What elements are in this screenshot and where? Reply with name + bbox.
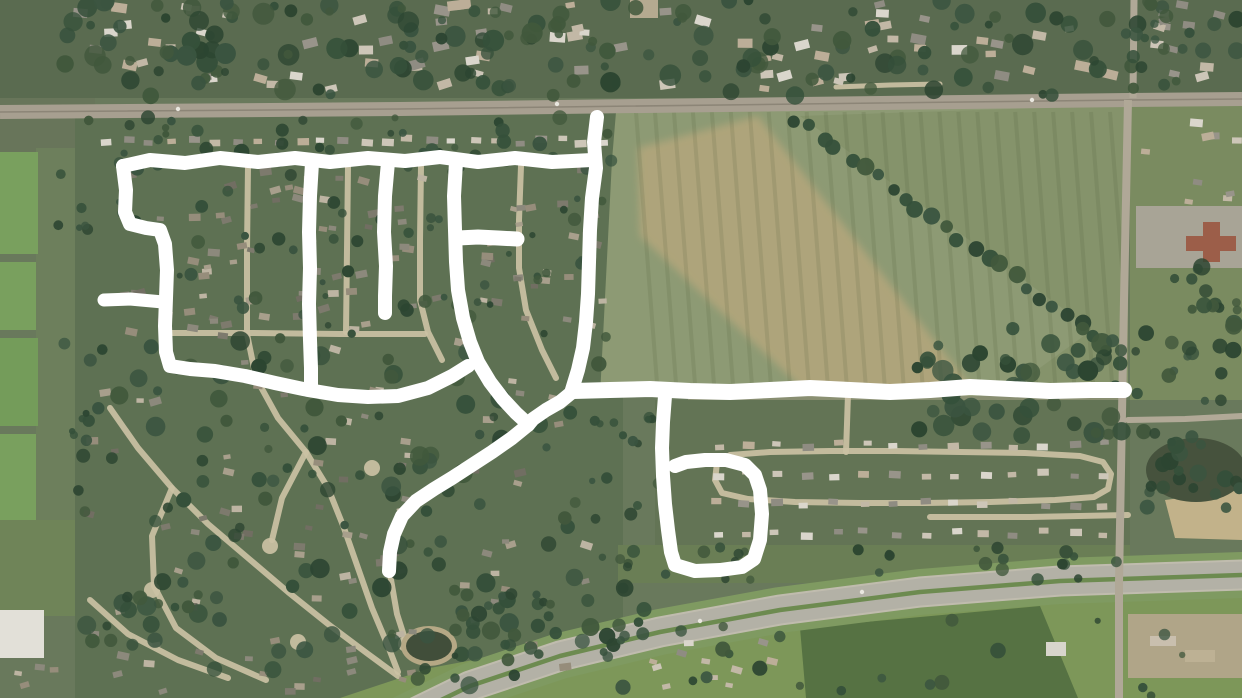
house <box>834 529 843 535</box>
house <box>144 140 153 146</box>
tree <box>125 120 135 130</box>
tree <box>182 600 195 613</box>
tree <box>177 46 197 66</box>
house <box>976 37 988 45</box>
tree <box>1232 298 1241 307</box>
tree <box>432 557 446 571</box>
tree <box>1089 56 1099 66</box>
tree <box>197 475 210 488</box>
tree <box>222 186 233 197</box>
tree <box>289 245 298 254</box>
tree <box>623 562 632 571</box>
hedgerow-tree <box>949 233 963 247</box>
tree <box>252 3 274 25</box>
tree <box>989 11 1001 23</box>
tree <box>481 47 494 60</box>
tree <box>677 13 687 23</box>
tree <box>627 545 640 558</box>
tree <box>933 341 943 351</box>
tree <box>215 43 236 64</box>
tree <box>1128 83 1139 94</box>
tree <box>633 501 642 510</box>
tree <box>70 431 78 439</box>
tree <box>1190 465 1207 482</box>
house <box>230 259 238 264</box>
house <box>981 472 992 479</box>
tree <box>544 611 554 621</box>
house <box>339 477 348 483</box>
tree <box>1132 388 1143 399</box>
tree <box>177 577 188 588</box>
tree <box>456 395 475 414</box>
tree <box>546 600 555 609</box>
house <box>481 252 493 260</box>
tree <box>759 13 770 24</box>
tree <box>500 640 510 650</box>
tree <box>154 66 164 76</box>
tree <box>509 670 520 681</box>
house <box>799 503 808 509</box>
tree <box>177 273 183 279</box>
tree <box>325 322 332 329</box>
house <box>713 473 724 480</box>
tree <box>601 62 609 70</box>
tree <box>160 45 174 59</box>
house <box>772 441 781 447</box>
house <box>294 551 305 558</box>
tree <box>605 155 617 167</box>
tree <box>449 585 460 596</box>
tree <box>1215 395 1227 407</box>
tree <box>141 110 155 124</box>
tree <box>474 298 482 306</box>
warehouse-white <box>0 610 44 658</box>
tree <box>326 89 336 99</box>
house <box>382 138 394 146</box>
house <box>574 65 588 74</box>
tree <box>998 554 1009 565</box>
vehicle-dot <box>698 619 702 623</box>
tree <box>144 339 159 354</box>
tree <box>449 624 462 637</box>
tree <box>147 633 162 648</box>
tree <box>365 61 383 79</box>
tree <box>1045 88 1058 101</box>
house <box>1041 503 1050 509</box>
tree <box>599 554 606 561</box>
house <box>1039 528 1049 534</box>
tree <box>280 359 294 373</box>
house <box>491 571 500 577</box>
tree <box>612 619 625 632</box>
tree <box>1188 305 1197 314</box>
house <box>328 225 336 231</box>
tree <box>267 475 279 487</box>
tree <box>113 20 126 33</box>
tree <box>56 169 66 179</box>
tree <box>701 671 713 683</box>
tree <box>283 463 293 473</box>
tree <box>1172 77 1181 86</box>
tree <box>342 603 358 619</box>
tree <box>946 614 959 627</box>
house <box>313 677 321 683</box>
hedgerow-tree <box>825 140 840 155</box>
house <box>858 471 869 478</box>
tree <box>81 222 89 230</box>
tree <box>106 452 118 464</box>
tree <box>542 443 550 451</box>
tree <box>531 619 545 633</box>
tree <box>1091 427 1102 438</box>
tree <box>502 653 515 666</box>
tree <box>205 535 221 551</box>
house <box>359 46 373 55</box>
tree <box>467 646 482 661</box>
house <box>198 272 210 280</box>
tree <box>469 5 481 17</box>
tree <box>210 390 228 408</box>
tree <box>495 123 509 137</box>
tree <box>950 22 959 31</box>
tree <box>833 31 852 50</box>
tree <box>1196 440 1206 450</box>
tree <box>76 203 86 213</box>
tree <box>637 602 652 617</box>
tree <box>320 279 326 285</box>
house <box>189 136 200 143</box>
house <box>1200 62 1214 72</box>
tree <box>252 472 267 487</box>
tree <box>308 470 317 479</box>
tree <box>194 590 203 599</box>
tree <box>1225 317 1242 334</box>
tree <box>104 634 117 647</box>
tree <box>1151 35 1160 44</box>
tree <box>122 592 133 603</box>
tree <box>413 70 434 91</box>
house <box>447 138 455 143</box>
house <box>148 38 161 47</box>
tree <box>934 675 949 690</box>
tree <box>189 11 209 31</box>
tree <box>466 625 480 639</box>
tree <box>325 145 335 155</box>
tree <box>340 521 349 530</box>
tree <box>322 293 328 299</box>
house <box>947 443 959 451</box>
tree <box>1149 428 1160 439</box>
tree <box>575 634 590 649</box>
tree <box>260 423 269 432</box>
tree <box>1150 20 1158 28</box>
tree <box>441 294 448 301</box>
tree <box>1167 438 1176 447</box>
tree <box>853 544 864 555</box>
house <box>328 290 339 297</box>
house <box>858 527 868 533</box>
tree <box>506 251 512 257</box>
house <box>659 8 671 16</box>
tree <box>588 37 597 46</box>
tree <box>973 422 992 441</box>
tree <box>381 477 401 497</box>
tree <box>206 26 224 44</box>
tree <box>634 617 644 627</box>
tree <box>1162 368 1177 383</box>
house <box>887 36 898 43</box>
house <box>742 532 751 537</box>
tree <box>1000 354 1011 365</box>
tree <box>955 4 975 24</box>
house <box>1009 498 1018 504</box>
house <box>1097 503 1108 510</box>
tree <box>1179 652 1185 658</box>
tree <box>383 354 394 365</box>
tree <box>628 436 638 446</box>
house <box>285 688 296 695</box>
tree <box>410 446 430 466</box>
house <box>1098 533 1107 539</box>
tree <box>818 64 835 81</box>
tree <box>1031 573 1043 585</box>
tree <box>310 559 330 579</box>
culdesac-bulb <box>364 460 380 476</box>
house <box>316 138 324 143</box>
tree <box>610 418 619 427</box>
hedgerow-tree <box>787 116 799 128</box>
tree <box>276 138 288 150</box>
tree <box>723 83 740 100</box>
tree <box>846 73 855 82</box>
tree <box>911 421 927 437</box>
house <box>471 137 481 144</box>
tree <box>415 50 428 63</box>
tree <box>1047 397 1061 411</box>
tree <box>388 630 396 638</box>
tree <box>86 21 95 30</box>
house <box>1099 473 1109 479</box>
tree <box>84 116 94 126</box>
tree <box>461 676 479 694</box>
tree <box>542 269 551 278</box>
tree <box>375 412 384 421</box>
house <box>952 528 962 535</box>
tree <box>185 268 198 281</box>
tree <box>1020 398 1040 418</box>
house <box>502 539 509 544</box>
tree <box>694 26 714 46</box>
tree <box>476 75 491 90</box>
industrial-bldg-white <box>1046 642 1066 656</box>
tree <box>548 57 564 73</box>
tree <box>301 13 313 25</box>
tree <box>1193 258 1210 275</box>
tree <box>438 16 446 24</box>
tree <box>574 196 581 203</box>
house <box>346 288 357 295</box>
tree <box>1138 683 1147 692</box>
house <box>361 139 373 147</box>
tree <box>1096 349 1112 365</box>
house <box>143 660 154 668</box>
tree <box>504 30 514 40</box>
house <box>978 530 989 537</box>
house <box>216 212 225 218</box>
tree <box>888 56 907 75</box>
tree <box>1184 28 1194 38</box>
tree <box>954 68 973 87</box>
tree <box>1006 322 1019 335</box>
tree <box>176 492 191 507</box>
tree <box>207 661 222 676</box>
tree <box>249 291 263 305</box>
tree <box>384 370 398 384</box>
tree <box>1186 273 1197 284</box>
tree <box>1159 9 1173 23</box>
tree <box>237 302 249 314</box>
tree <box>689 676 698 685</box>
tree <box>435 215 443 223</box>
tree <box>92 402 104 414</box>
tree <box>983 82 994 93</box>
tree <box>387 130 394 137</box>
street-vertical-2 <box>346 166 348 332</box>
tree <box>421 505 432 516</box>
house <box>985 51 995 58</box>
tree <box>925 679 936 690</box>
tree <box>1095 618 1101 624</box>
house <box>889 471 901 479</box>
church-roof-nave <box>1203 222 1220 262</box>
hedgerow-tree <box>991 255 1008 272</box>
house <box>245 656 253 661</box>
house <box>460 582 470 588</box>
tree <box>285 4 298 17</box>
tree <box>989 404 1005 420</box>
house <box>564 274 573 280</box>
house <box>811 24 823 32</box>
tree <box>315 143 324 152</box>
tree <box>305 398 323 416</box>
tree <box>541 536 556 551</box>
tree <box>84 45 105 66</box>
tree <box>436 33 448 45</box>
tree <box>985 21 993 29</box>
tree <box>581 594 594 607</box>
house <box>50 667 59 673</box>
tree <box>284 50 293 59</box>
house <box>426 136 438 144</box>
tree <box>85 634 100 649</box>
tree <box>326 38 347 59</box>
house <box>184 308 196 316</box>
house <box>918 444 927 450</box>
tree <box>53 220 63 230</box>
house <box>1037 469 1049 476</box>
tree <box>254 243 265 254</box>
tree <box>296 641 313 658</box>
tree <box>1049 11 1063 25</box>
tree <box>487 301 494 308</box>
house <box>802 444 814 451</box>
tree <box>484 601 493 610</box>
tree <box>603 651 614 662</box>
tree <box>558 511 572 525</box>
hedgerow-tree <box>923 207 940 224</box>
house <box>1037 443 1048 450</box>
tree <box>692 50 708 66</box>
tree <box>336 415 347 426</box>
tree <box>918 65 929 76</box>
house <box>922 474 931 480</box>
tree <box>1138 325 1154 341</box>
tree <box>399 41 408 50</box>
tree <box>1112 422 1130 440</box>
tree <box>848 7 857 16</box>
house <box>922 533 931 539</box>
hedgerow-tree <box>803 119 815 131</box>
hedgerow-tree <box>888 184 900 196</box>
tree <box>77 616 96 635</box>
tree <box>56 55 73 72</box>
tree <box>228 557 239 568</box>
tree <box>719 622 728 631</box>
house <box>508 378 517 384</box>
house <box>829 474 839 481</box>
tree <box>786 86 804 104</box>
tree <box>1178 44 1188 54</box>
house <box>1070 529 1082 536</box>
tree <box>392 114 399 121</box>
house <box>232 506 242 512</box>
tree <box>195 200 208 213</box>
vehicle-dot <box>555 102 559 106</box>
tree <box>600 72 620 92</box>
house <box>864 441 872 446</box>
house <box>325 438 336 445</box>
tree <box>110 386 128 404</box>
tree <box>1140 500 1155 515</box>
tree <box>524 641 537 654</box>
hedgerow-tree <box>940 220 953 233</box>
house <box>35 664 45 671</box>
sports-field-2 <box>0 262 36 330</box>
tree <box>764 28 781 45</box>
tree <box>1233 306 1242 315</box>
tree <box>1165 336 1179 350</box>
tree <box>1111 556 1122 567</box>
tree <box>398 299 410 311</box>
house <box>920 498 931 505</box>
tree <box>498 592 506 600</box>
tree <box>1103 429 1114 440</box>
tree <box>616 579 634 597</box>
tree <box>1074 574 1082 582</box>
tree <box>197 426 213 442</box>
tree <box>552 110 567 125</box>
tree <box>506 588 518 600</box>
tree <box>1071 343 1086 358</box>
tree <box>1099 11 1115 27</box>
street-subdiv-entry <box>846 394 848 452</box>
tree <box>480 280 490 290</box>
house <box>892 532 902 538</box>
house <box>136 398 143 403</box>
tree <box>220 415 232 427</box>
tree <box>241 232 249 240</box>
tree <box>187 552 205 570</box>
